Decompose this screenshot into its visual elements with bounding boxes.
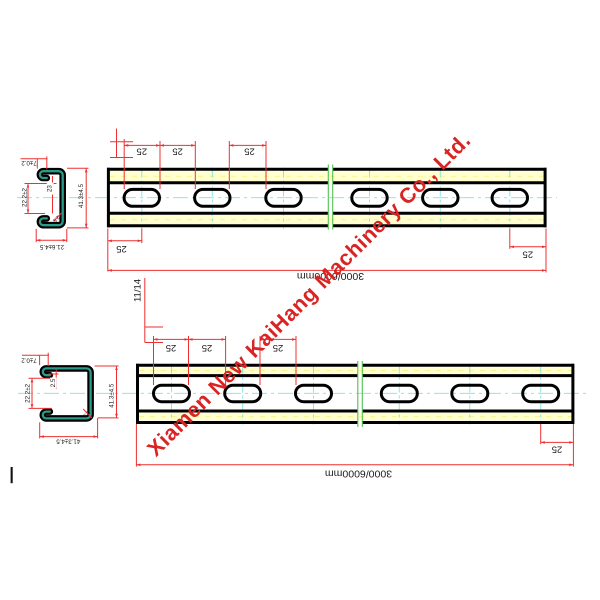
svg-text:23: 23 — [47, 185, 54, 192]
svg-text:21.6±4.5: 21.6±4.5 — [39, 243, 64, 250]
svg-text:2.5: 2.5 — [50, 378, 57, 387]
svg-text:25: 25 — [244, 145, 255, 156]
svg-text:25: 25 — [166, 342, 177, 353]
svg-text:25: 25 — [202, 342, 213, 353]
svg-text:22.2±2: 22.2±2 — [22, 188, 29, 207]
svg-text:3000/6000mm: 3000/6000mm — [325, 468, 392, 480]
svg-text:25: 25 — [552, 444, 563, 455]
svg-text:25: 25 — [172, 145, 183, 156]
svg-text:41.3±4.5: 41.3±4.5 — [78, 183, 85, 208]
svg-text:11/14: 11/14 — [133, 279, 144, 302]
svg-text:25: 25 — [116, 243, 127, 254]
svg-text:41.3±4.5: 41.3±4.5 — [108, 383, 115, 408]
svg-text:7±0.2: 7±0.2 — [21, 356, 37, 363]
svg-text:25: 25 — [523, 248, 534, 259]
svg-text:41.3±4.5: 41.3±4.5 — [56, 438, 81, 445]
svg-text:25: 25 — [137, 145, 148, 156]
svg-text:22.2±2: 22.2±2 — [25, 383, 32, 402]
svg-text:7±0.2: 7±0.2 — [21, 159, 37, 166]
